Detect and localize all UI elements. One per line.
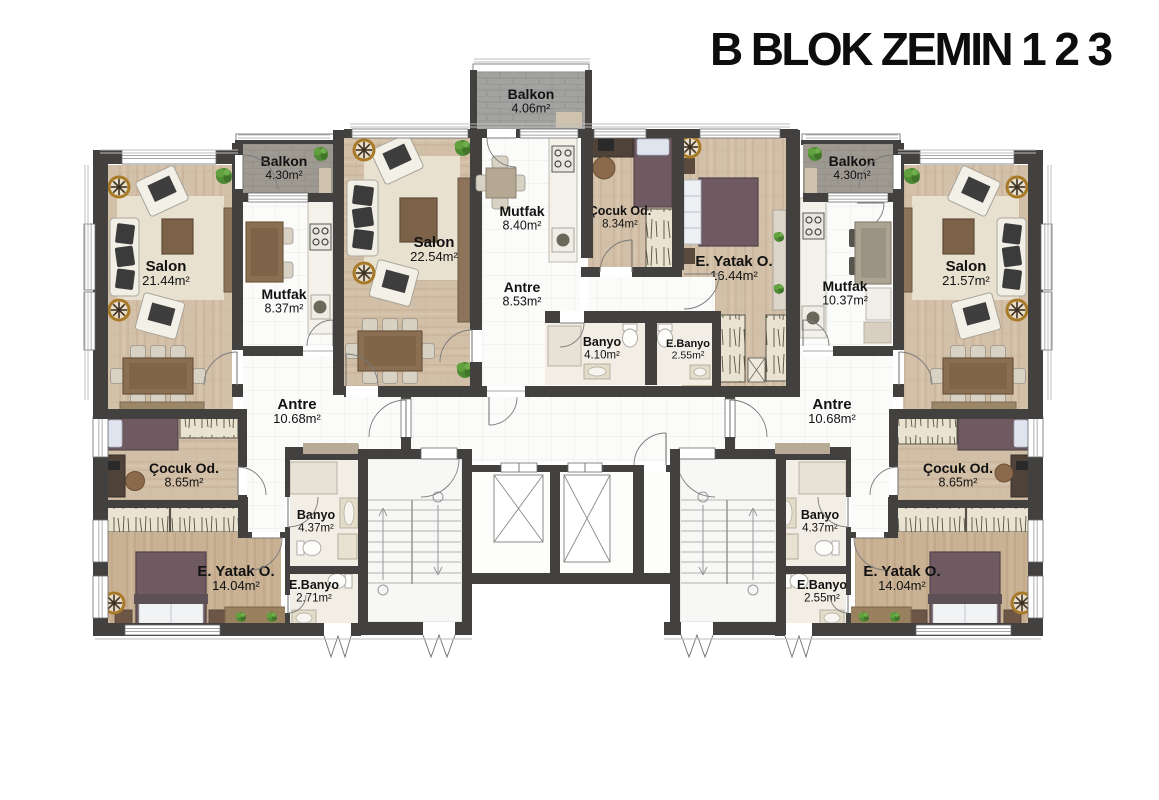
svg-text:10.37m²: 10.37m² [822,294,868,308]
svg-text:14.04m²: 14.04m² [212,578,260,593]
svg-text:8.65m²: 8.65m² [939,476,978,490]
svg-text:10.68m²: 10.68m² [273,411,321,426]
svg-text:Çocuk Od.: Çocuk Od. [149,460,219,476]
svg-text:Banyo: Banyo [801,508,840,522]
svg-text:Banyo: Banyo [583,335,622,349]
svg-text:Balkon: Balkon [829,153,876,169]
svg-text:Antre: Antre [504,279,541,295]
svg-text:E.Banyo: E.Banyo [289,578,339,592]
svg-text:4.10m²: 4.10m² [584,350,620,362]
svg-text:2.55m²: 2.55m² [804,593,840,605]
svg-text:8.34m²: 8.34m² [602,219,638,231]
svg-text:Mutfak: Mutfak [261,286,306,302]
svg-text:2.71m²: 2.71m² [296,593,332,605]
svg-text:E.Banyo: E.Banyo [666,338,710,350]
svg-text:8.53m²: 8.53m² [503,295,542,309]
svg-text:Çocuk Od.: Çocuk Od. [589,204,652,218]
svg-text:4.37m²: 4.37m² [802,523,838,535]
svg-text:Mutfak: Mutfak [822,278,867,294]
svg-text:22.54m²: 22.54m² [410,249,458,264]
svg-text:14.04m²: 14.04m² [878,578,926,593]
svg-text:4.37m²: 4.37m² [298,523,334,535]
svg-text:8.40m²: 8.40m² [503,219,542,233]
svg-text:2.55m²: 2.55m² [672,350,705,362]
svg-text:16.44m²: 16.44m² [710,268,758,283]
svg-text:8.65m²: 8.65m² [165,476,204,490]
svg-text:B BLOK ZEMIN 1 2 3: B BLOK ZEMIN 1 2 3 [710,23,1112,75]
svg-text:4.06m²: 4.06m² [512,102,551,116]
svg-text:Banyo: Banyo [297,508,336,522]
svg-text:8.37m²: 8.37m² [265,302,304,316]
svg-text:Balkon: Balkon [261,153,308,169]
svg-text:Çocuk Od.: Çocuk Od. [923,460,993,476]
svg-text:21.44m²: 21.44m² [142,273,190,288]
svg-text:E.Banyo: E.Banyo [797,578,847,592]
svg-text:Balkon: Balkon [508,86,555,102]
svg-text:21.57m²: 21.57m² [942,273,990,288]
svg-text:10.68m²: 10.68m² [808,411,856,426]
svg-text:Mutfak: Mutfak [499,203,544,219]
